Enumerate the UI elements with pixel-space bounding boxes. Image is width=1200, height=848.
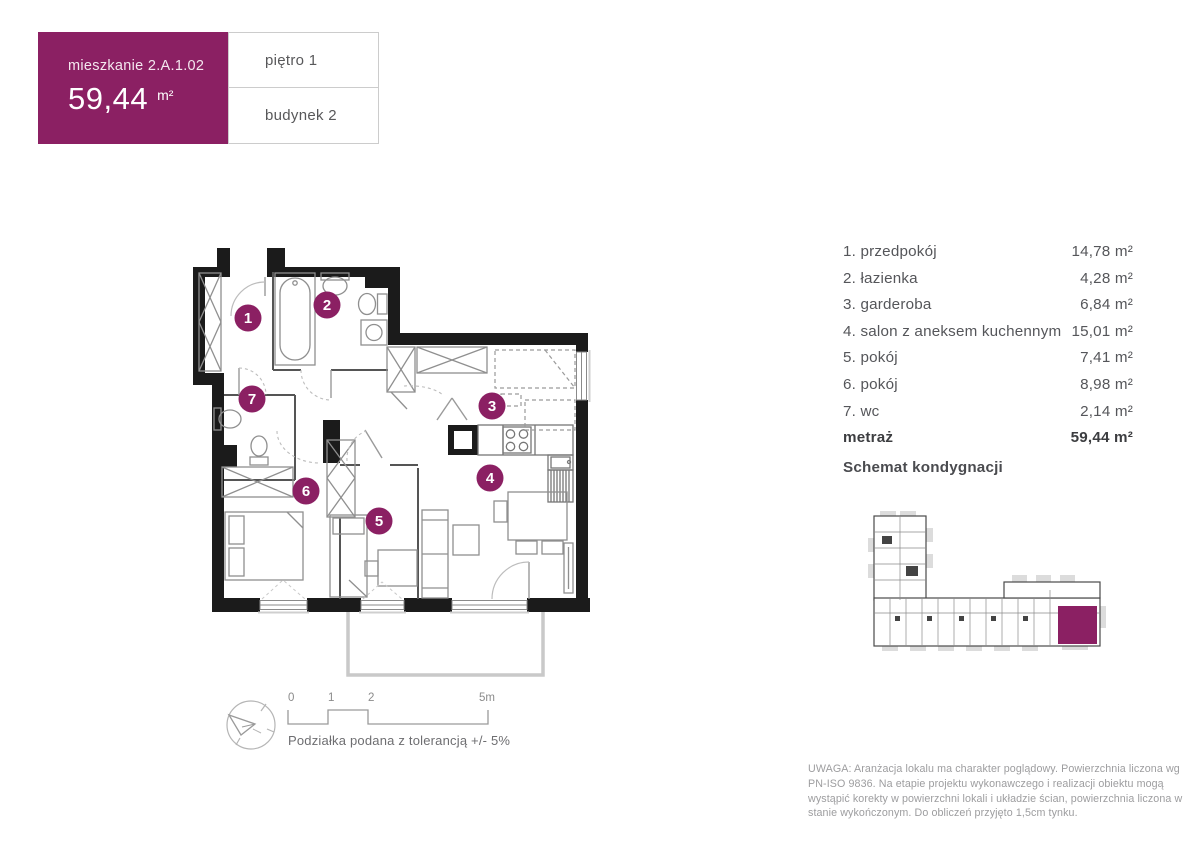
dashed-wardrobes [495, 350, 575, 430]
highlighted-unit [1058, 606, 1097, 644]
unit-info-boxes: piętro 1 budynek 2 [228, 32, 379, 144]
coffee-table [453, 525, 479, 555]
svg-text:5: 5 [375, 513, 383, 530]
unit-area-value: 59,44 [68, 81, 148, 116]
room-list: 1. przedpokój14,78 m² 2. łazienka4,28 m²… [843, 243, 1133, 456]
floorplan-sheet: mieszkanie 2.A.1.02 59,44m² piętro 1 bud… [0, 0, 1200, 848]
room-badge: 3 [479, 393, 506, 420]
total-row: metraż59,44 m² [843, 429, 1133, 456]
scale-bar [286, 706, 496, 728]
room-badge: 6 [293, 478, 320, 505]
room-badge: 4 [477, 465, 504, 492]
scale-tick-1: 1 [328, 692, 334, 704]
schematic-title: Schemat kondygnacji [843, 459, 1003, 476]
double-bed [225, 512, 303, 580]
svg-text:6: 6 [302, 483, 310, 500]
room-row: 5. pokój7,41 m² [843, 349, 1133, 376]
svg-text:1: 1 [244, 310, 252, 327]
svg-text:7: 7 [248, 391, 256, 408]
room-row: 1. przedpokój14,78 m² [843, 243, 1133, 270]
scale-caption: Podziałka podana z tolerancją +/- 5% [288, 733, 510, 748]
compass-icon [220, 696, 280, 754]
disclaimer-text: UWAGA: Aranżacja lokalu ma charakter pog… [808, 762, 1192, 821]
svg-text:2: 2 [323, 297, 331, 314]
scale-tick-2: 2 [368, 692, 374, 704]
svg-text:3: 3 [488, 398, 496, 415]
room-row: 6. pokój8,98 m² [843, 376, 1133, 403]
bath-toilet [359, 294, 376, 315]
scale-tick-0: 0 [288, 692, 294, 704]
room-badge: 1 [235, 305, 262, 332]
svg-text:4: 4 [486, 470, 495, 487]
balcony-outline [348, 612, 543, 675]
room-row: 2. łazienka4,28 m² [843, 270, 1133, 297]
floor-box: piętro 1 [229, 33, 378, 88]
unit-area-unit: m² [157, 87, 173, 103]
room-badge: 7 [239, 386, 266, 413]
shaft-column [451, 428, 475, 452]
room-badge: 5 [366, 508, 393, 535]
wc-toilet [251, 436, 267, 456]
building-schematic [862, 510, 1107, 652]
unit-title: mieszkanie 2.A.1.02 [68, 58, 228, 74]
door-arcs [231, 277, 529, 599]
room-row: 3. garderoba6,84 m² [843, 296, 1133, 323]
room-row: 4. salon z aneksem kuchennym15,01 m² [843, 323, 1133, 350]
room-badge: 2 [314, 292, 341, 319]
single-bed [330, 515, 367, 597]
desk [378, 550, 417, 586]
floor-plan: 1 2 3 4 5 6 7 [185, 228, 607, 690]
unit-area: 59,44m² [68, 81, 228, 117]
scale-tick-5m: 5m [479, 692, 495, 704]
washer [361, 320, 387, 345]
room-row: 7. wc2,14 m² [843, 403, 1133, 430]
dining-table [508, 492, 567, 540]
unit-card: mieszkanie 2.A.1.02 59,44m² [38, 32, 228, 144]
building-box: budynek 2 [229, 88, 378, 143]
